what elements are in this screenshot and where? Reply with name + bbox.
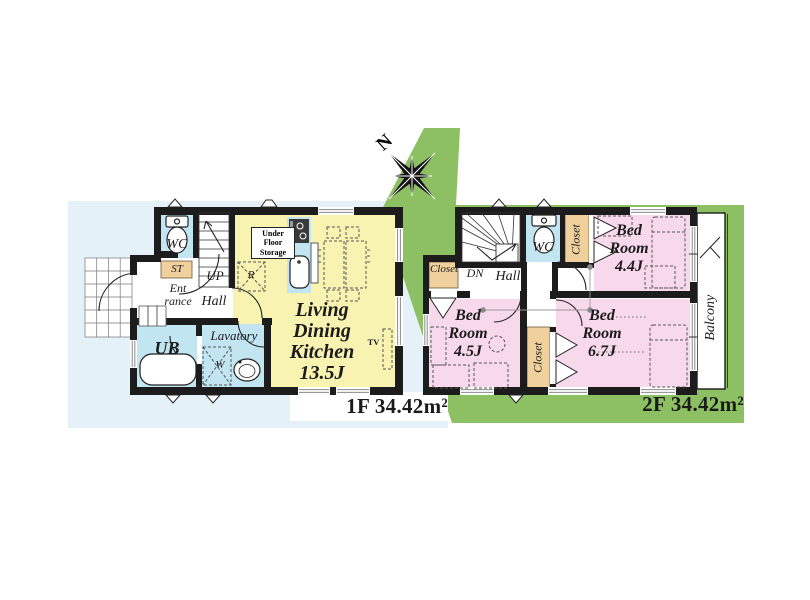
closet-top-label: Closet xyxy=(562,212,590,268)
entrance-porch xyxy=(85,258,132,337)
room-label-bedroom-c: Bed Room 6.7J xyxy=(556,302,648,366)
room-label-unit-bath: UB xyxy=(144,337,190,361)
stairs-label-up: UP xyxy=(197,268,233,285)
floor-plan-page: N WC ST Ent rance Hall UP UB Lavatory W … xyxy=(0,0,810,600)
room-label-bedroom-b: Bed Room 4.5J xyxy=(428,302,508,366)
vent-wc-2f xyxy=(537,199,551,207)
vent-stairs-2f xyxy=(492,199,506,207)
balcony-label: Balcony xyxy=(696,248,726,388)
room-label-hall-2f: Hall xyxy=(486,268,530,286)
floor2-area-label: 2F 34.42m² xyxy=(590,392,744,418)
closet-left-label: Closet xyxy=(426,262,462,277)
room-label-wc-1f: WC xyxy=(157,235,197,255)
room-label-lavatory: Lavatory xyxy=(202,328,266,344)
room-label-bedroom-a: Bed Room 4.4J xyxy=(590,218,668,280)
floor-plan-graphics xyxy=(0,0,810,600)
lavatory-sink xyxy=(234,359,260,381)
refrigerator-label: R xyxy=(243,268,259,283)
washer-label: W xyxy=(211,358,229,373)
floor1-area-label: 1F 34.42m² xyxy=(294,394,448,420)
room-label-hall-1f: Hall xyxy=(192,293,236,311)
under-floor-storage-box: Under Floor Storage xyxy=(251,227,295,259)
room-label-wc-2f: WC xyxy=(524,238,562,258)
room-label-storage: ST xyxy=(160,260,194,278)
compass-rose xyxy=(389,153,435,199)
tv-label: TV xyxy=(365,337,382,348)
closet-mid-label: Closet xyxy=(525,327,551,388)
room-label-ldk: Living Dining Kitchen 13.5J xyxy=(262,296,382,388)
